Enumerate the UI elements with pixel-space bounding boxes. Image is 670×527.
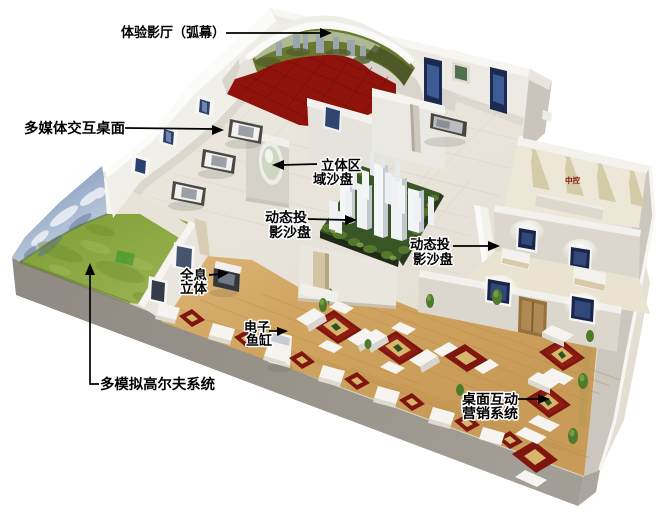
svg-text:立体: 立体 — [180, 280, 207, 296]
svg-text:影沙盘: 影沙盘 — [269, 224, 312, 240]
svg-text:域沙盘: 域沙盘 — [313, 171, 353, 187]
svg-text:桌面互动: 桌面互动 — [462, 391, 519, 407]
svg-text:中控: 中控 — [565, 175, 580, 185]
svg-text:体验影厅（弧幕）: 体验影厅（弧幕） — [121, 24, 225, 40]
svg-text:营销系统: 营销系统 — [462, 405, 519, 421]
svg-text:鱼缸: 鱼缸 — [246, 332, 272, 348]
svg-text:立体区: 立体区 — [321, 157, 361, 173]
svg-text:动态投: 动态投 — [410, 236, 450, 252]
svg-text:多媒体交互桌面: 多媒体交互桌面 — [24, 120, 125, 136]
svg-text:影沙盘: 影沙盘 — [413, 251, 453, 267]
svg-text:多模拟高尔夫系统: 多模拟高尔夫系统 — [100, 376, 215, 392]
svg-text:动态投: 动态投 — [265, 209, 308, 225]
